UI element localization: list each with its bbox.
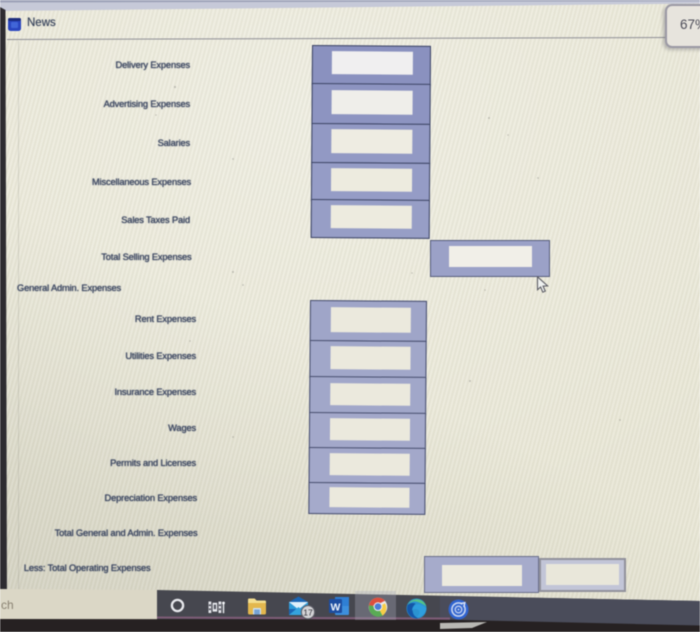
svg-text:W: W: [331, 602, 341, 614]
svg-text:17: 17: [303, 607, 313, 617]
